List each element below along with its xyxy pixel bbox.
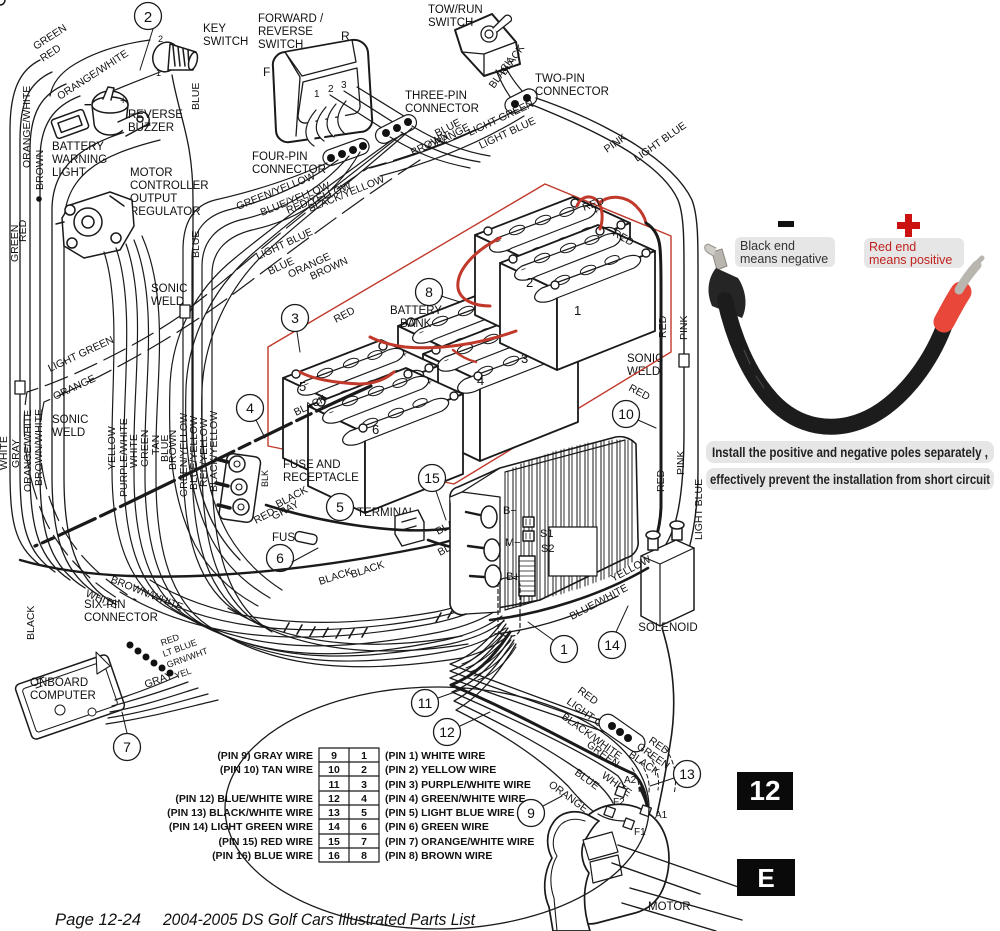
- svg-text:5: 5: [361, 807, 367, 819]
- svg-text:7: 7: [123, 739, 131, 755]
- svg-text:12: 12: [439, 724, 455, 740]
- svg-text:THREE-PIN: THREE-PIN: [405, 90, 467, 102]
- svg-text:BLK: BLK: [260, 470, 270, 487]
- svg-text:M−: M−: [505, 537, 521, 549]
- svg-text:2: 2: [158, 34, 163, 44]
- svg-text:E: E: [757, 863, 774, 893]
- svg-text:11: 11: [418, 695, 433, 711]
- svg-text:A2: A2: [624, 775, 637, 786]
- svg-text:BUZZER: BUZZER: [128, 122, 174, 134]
- svg-text:2: 2: [361, 764, 367, 776]
- svg-text:FOUR-PIN: FOUR-PIN: [252, 151, 308, 163]
- svg-text:(PIN 5) LIGHT BLUE WIRE: (PIN 5) LIGHT BLUE WIRE: [385, 807, 515, 819]
- svg-text:LIGHT: LIGHT: [52, 167, 86, 179]
- svg-text:(PIN 8) BROWN WIRE: (PIN 8) BROWN WIRE: [385, 850, 492, 862]
- svg-text:2: 2: [526, 275, 533, 290]
- svg-text:WARNING: WARNING: [52, 154, 107, 166]
- svg-text:10: 10: [618, 406, 634, 422]
- svg-text:SONIC: SONIC: [52, 414, 88, 426]
- svg-text:2: 2: [328, 84, 334, 95]
- svg-text:BATTERY: BATTERY: [390, 305, 442, 317]
- svg-text:REGULATOR: REGULATOR: [130, 206, 201, 218]
- svg-text:4: 4: [477, 373, 484, 388]
- svg-text:1: 1: [574, 303, 581, 318]
- svg-text:(PIN 3) PURPLE/WHITE WIRE: (PIN 3) PURPLE/WHITE WIRE: [385, 779, 531, 791]
- svg-text:12: 12: [328, 793, 340, 805]
- svg-text:Red end: Red end: [869, 240, 916, 254]
- svg-text:WELD: WELD: [151, 296, 184, 308]
- svg-text:6: 6: [276, 550, 284, 566]
- svg-text:REVERSE: REVERSE: [258, 26, 313, 38]
- svg-text:CONNECTOR: CONNECTOR: [535, 86, 609, 98]
- svg-text:SONIC: SONIC: [627, 353, 663, 365]
- svg-text:(PIN 7) ORANGE/WHITE WIRE: (PIN 7) ORANGE/WHITE WIRE: [385, 836, 534, 848]
- svg-text:14: 14: [604, 637, 620, 653]
- svg-text:SWITCH: SWITCH: [428, 17, 473, 29]
- svg-text:SWITCH: SWITCH: [203, 36, 248, 48]
- svg-text:14: 14: [328, 821, 340, 833]
- svg-text:BLACK: BLACK: [25, 606, 37, 640]
- svg-text:COMPUTER: COMPUTER: [30, 690, 96, 702]
- svg-text:(PIN 16) BLUE WIRE: (PIN 16) BLUE WIRE: [212, 850, 313, 862]
- svg-text:3: 3: [361, 779, 367, 791]
- svg-text:9: 9: [331, 750, 337, 762]
- svg-text:MOTOR: MOTOR: [648, 901, 691, 913]
- svg-text:9: 9: [527, 805, 535, 821]
- svg-text:F: F: [263, 65, 270, 79]
- svg-text:WHITE: WHITE: [0, 436, 10, 470]
- svg-text:ONBOARD: ONBOARD: [30, 677, 88, 689]
- svg-text:10: 10: [328, 764, 340, 776]
- svg-text:+: +: [120, 95, 126, 107]
- svg-text:3: 3: [521, 351, 528, 366]
- svg-text:7: 7: [361, 836, 367, 848]
- svg-text:YELLOW: YELLOW: [106, 426, 118, 470]
- svg-text:1: 1: [314, 89, 320, 100]
- svg-text:1: 1: [560, 641, 568, 657]
- svg-text:PINK: PINK: [678, 315, 690, 340]
- svg-text:5: 5: [299, 379, 306, 394]
- svg-text:5: 5: [336, 499, 344, 515]
- svg-text:(PIN 12) BLUE/WHITE WIRE: (PIN 12) BLUE/WHITE WIRE: [175, 793, 313, 805]
- svg-text:CONNECTOR: CONNECTOR: [84, 612, 158, 624]
- svg-text:16: 16: [328, 850, 340, 862]
- svg-text:4: 4: [361, 793, 367, 805]
- svg-text:SWITCH: SWITCH: [258, 39, 303, 51]
- svg-text:SONIC: SONIC: [151, 283, 187, 295]
- svg-text:R: R: [341, 29, 350, 43]
- svg-text:CONNECTOR: CONNECTOR: [252, 164, 326, 176]
- svg-text:(PIN 15) RED WIRE: (PIN 15) RED WIRE: [218, 836, 313, 848]
- svg-text:(PIN 6) GREEN WIRE: (PIN 6) GREEN WIRE: [385, 821, 489, 833]
- svg-text:OUTPUT: OUTPUT: [130, 193, 177, 205]
- svg-text:(PIN 14) LIGHT GREEN WIRE: (PIN 14) LIGHT GREEN WIRE: [169, 821, 313, 833]
- svg-text:8: 8: [361, 850, 367, 862]
- svg-text:(PIN 4) GREEN/WHITE WIRE: (PIN 4) GREEN/WHITE WIRE: [385, 793, 526, 805]
- svg-text:15: 15: [424, 470, 440, 486]
- svg-text:LIGHT BLUE: LIGHT BLUE: [693, 479, 705, 540]
- svg-text:11: 11: [328, 779, 339, 791]
- svg-text:RED: RED: [657, 315, 669, 338]
- svg-text:13: 13: [679, 766, 695, 782]
- svg-text:WELD: WELD: [52, 427, 85, 439]
- svg-text:effectively prevent the instal: effectively prevent the installation fro…: [710, 472, 990, 487]
- svg-text:GREEN: GREEN: [9, 225, 21, 262]
- svg-text:BLACK/YELLOW: BLACK/YELLOW: [208, 411, 220, 492]
- svg-text:BLUE: BLUE: [190, 83, 202, 110]
- svg-text:6: 6: [372, 422, 379, 437]
- svg-text:SIX-PIN: SIX-PIN: [84, 599, 126, 611]
- svg-text:SOLENOID: SOLENOID: [638, 622, 697, 634]
- svg-text:−: −: [84, 97, 92, 112]
- svg-text:B+: B+: [506, 571, 520, 583]
- svg-text:B−: B−: [503, 505, 517, 517]
- svg-text:1: 1: [361, 750, 367, 762]
- svg-text:Install the positive and negat: Install the positive and negative poles …: [712, 445, 988, 460]
- svg-text:MOTOR: MOTOR: [130, 167, 173, 179]
- svg-text:Black end: Black end: [740, 239, 795, 253]
- svg-text:S2: S2: [541, 543, 554, 555]
- svg-text:(PIN 2) YELLOW WIRE: (PIN 2) YELLOW WIRE: [385, 764, 496, 776]
- svg-text:KEY: KEY: [203, 23, 226, 35]
- svg-text:(PIN 10) TAN WIRE: (PIN 10) TAN WIRE: [220, 764, 313, 776]
- svg-text:S1: S1: [540, 528, 553, 540]
- svg-text:REVERSE: REVERSE: [128, 109, 183, 121]
- svg-text:BROWN: BROWN: [34, 150, 46, 190]
- svg-text:FUSE AND: FUSE AND: [283, 459, 341, 471]
- svg-text:15: 15: [328, 836, 340, 848]
- svg-text:BATTERY: BATTERY: [52, 141, 104, 153]
- svg-text:(PIN 13) BLACK/WHITE WIRE: (PIN 13) BLACK/WHITE WIRE: [167, 807, 313, 819]
- svg-text:ORANGE/WHITE: ORANGE/WHITE: [21, 86, 33, 168]
- svg-text:12: 12: [749, 775, 780, 806]
- svg-text:TWO-PIN: TWO-PIN: [535, 73, 585, 85]
- svg-text:TOW/RUN: TOW/RUN: [428, 4, 483, 16]
- svg-text:3: 3: [341, 80, 347, 91]
- svg-text:(PIN 1) WHITE WIRE: (PIN 1) WHITE WIRE: [385, 750, 485, 762]
- svg-text:Page 12-24: Page 12-24: [55, 911, 141, 929]
- svg-text:CONNECTOR: CONNECTOR: [405, 103, 479, 115]
- svg-text:(PIN 9) GRAY WIRE: (PIN 9) GRAY WIRE: [217, 750, 313, 762]
- svg-text:BANK: BANK: [400, 318, 432, 330]
- svg-text:2004-2005 DS Golf Cars Illustr: 2004-2005 DS Golf Cars Illustrated Parts…: [162, 911, 476, 929]
- svg-text:3: 3: [291, 310, 299, 326]
- svg-text:6: 6: [361, 821, 367, 833]
- svg-text:8: 8: [425, 284, 433, 300]
- svg-text:GRAY: GRAY: [10, 439, 22, 468]
- svg-text:FORWARD /: FORWARD /: [258, 13, 324, 25]
- svg-text:13: 13: [328, 807, 340, 819]
- svg-text:CONTROLLER: CONTROLLER: [130, 180, 209, 192]
- svg-text:means positive: means positive: [869, 253, 952, 267]
- svg-text:4: 4: [246, 400, 254, 416]
- svg-text:2: 2: [144, 9, 152, 26]
- svg-text:PINK: PINK: [675, 450, 687, 475]
- svg-text:F2: F2: [613, 797, 625, 808]
- svg-text:RECEPTACLE: RECEPTACLE: [283, 472, 359, 484]
- svg-text:means negative: means negative: [740, 252, 828, 266]
